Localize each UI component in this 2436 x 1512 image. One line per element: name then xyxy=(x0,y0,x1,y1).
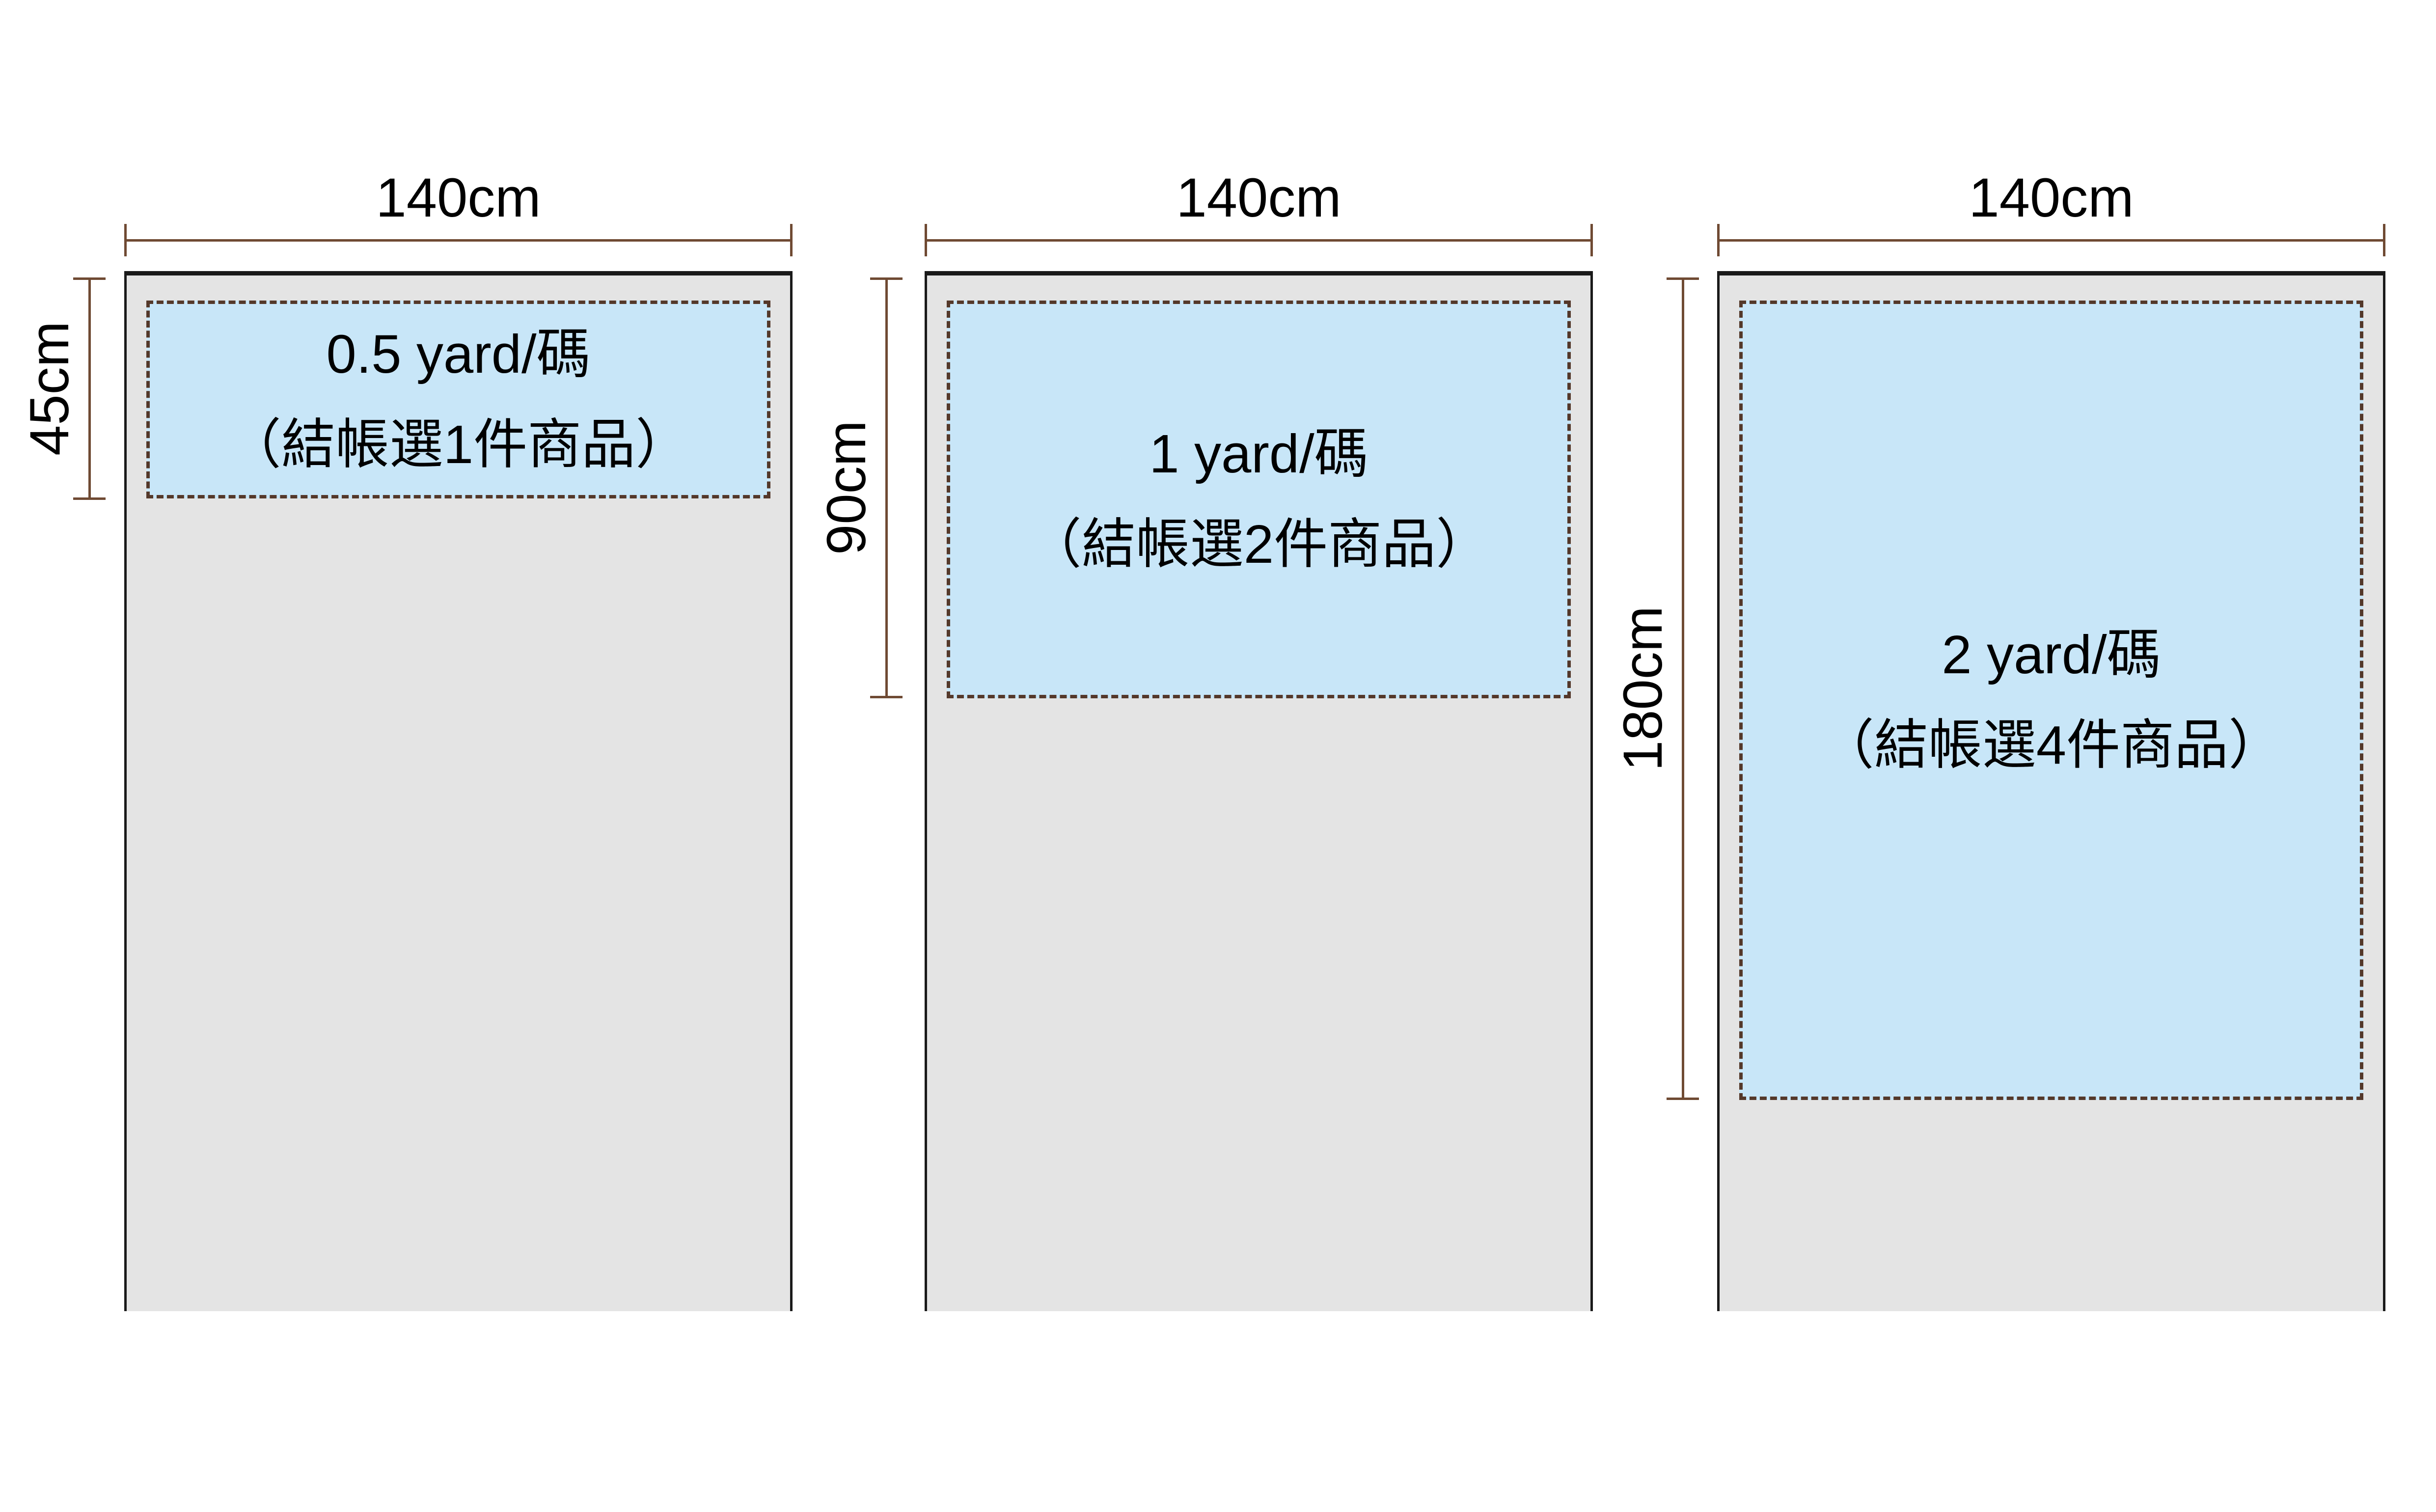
width-dimension-line xyxy=(925,239,1593,242)
height-dimension-line xyxy=(885,277,888,698)
height-dimension-label-text: 90cm xyxy=(815,420,878,555)
width-dimension-tick-left xyxy=(1717,224,1720,256)
width-dimension-tick-left xyxy=(124,224,127,256)
width-dimension-line xyxy=(124,239,793,242)
width-dimension-label: 140cm xyxy=(925,169,1593,226)
width-dimension-tick-right xyxy=(790,224,793,256)
cut-area: 1 yard/碼 （結帳選2件商品） xyxy=(947,301,1571,698)
yardage-label: 0.5 yard/碼 xyxy=(326,326,590,383)
height-dimension-tick-top xyxy=(1667,277,1699,280)
yardage-label: 2 yard/碼 xyxy=(1942,627,2161,684)
width-dimension-line xyxy=(1717,239,2385,242)
height-dimension-label-text: 45cm xyxy=(18,321,81,456)
height-dimension-label: 180cm xyxy=(1614,541,1671,836)
width-dimension-tick-left xyxy=(925,224,927,256)
height-dimension-line xyxy=(88,277,91,500)
width-dimension-tick-right xyxy=(2383,224,2385,256)
cut-area: 0.5 yard/碼 （結帳選1件商品） xyxy=(146,301,770,498)
height-dimension-label: 90cm xyxy=(818,340,875,635)
height-dimension-tick-bottom xyxy=(73,497,106,500)
height-dimension-line xyxy=(1682,277,1684,1100)
width-dimension-tick-right xyxy=(1590,224,1593,256)
checkout-note: （結帳選4件商品） xyxy=(1820,717,2282,774)
cut-area: 2 yard/碼 （結帳選4件商品） xyxy=(1739,301,2363,1100)
height-dimension-label: 45cm xyxy=(21,241,78,536)
height-dimension-tick-top xyxy=(870,277,903,280)
fabric-yardage-diagram: 140cm 45cm 0.5 yard/碼 （結帳選1件商品） 140cm 90… xyxy=(0,0,2436,1512)
height-dimension-tick-bottom xyxy=(870,696,903,698)
checkout-note: （結帳選2件商品） xyxy=(1028,516,1490,573)
checkout-note: （結帳選1件商品） xyxy=(227,416,689,473)
width-dimension-label: 140cm xyxy=(124,169,793,226)
width-dimension-label: 140cm xyxy=(1717,169,2385,226)
height-dimension-label-text: 180cm xyxy=(1611,606,1674,771)
height-dimension-tick-top xyxy=(73,277,106,280)
yardage-label: 1 yard/碼 xyxy=(1149,426,1368,483)
height-dimension-tick-bottom xyxy=(1667,1098,1699,1100)
